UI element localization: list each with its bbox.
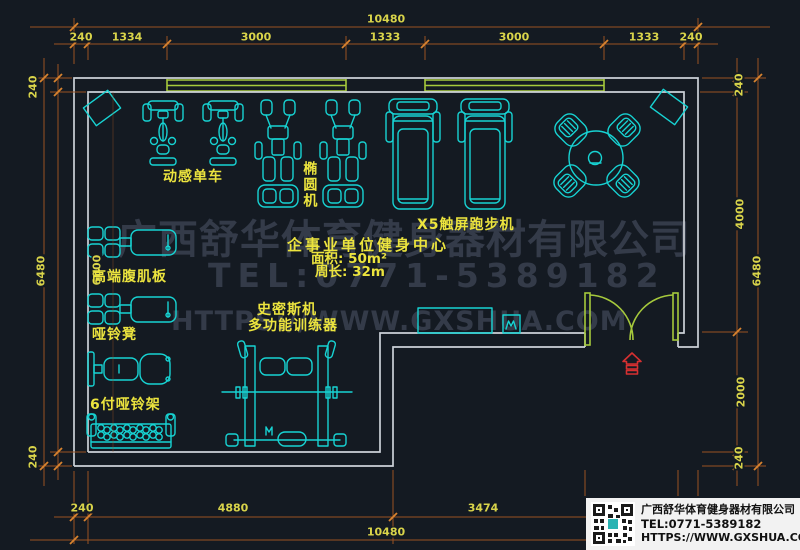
label-ab-board: 高端腹肌板 bbox=[92, 270, 167, 285]
dim-left-seg: 240 bbox=[28, 445, 39, 470]
label-elliptical: 椭圆机 bbox=[301, 161, 316, 209]
dim-bottom-seg: 4880 bbox=[217, 503, 250, 514]
dim-top-seg: 240 bbox=[69, 32, 94, 43]
smith-machine-icon bbox=[222, 340, 352, 446]
room-perimeter: 周长: 32m bbox=[315, 265, 385, 280]
logo-tel: TEL:0771-5389182 bbox=[641, 517, 800, 531]
logo-url: HTTPS://WWW.GXSHUA.COM bbox=[641, 531, 800, 545]
window-band-right bbox=[425, 79, 604, 92]
entrance-marker bbox=[623, 353, 641, 374]
label-spin-bike: 动感单车 bbox=[163, 170, 223, 185]
cad-floor-plan: 广西舒华体育健身器材有限公司 TEL:0771-5389182 HTTPS://… bbox=[0, 0, 800, 550]
qr-code-icon bbox=[591, 502, 635, 546]
dim-top-seg: 1334 bbox=[111, 32, 144, 43]
treadmill-icon bbox=[386, 99, 440, 209]
label-dumbbell-bench: 哑铃凳 bbox=[92, 328, 137, 343]
elliptical-icon bbox=[320, 100, 366, 207]
label-multi-trainer: 多功能训练器 bbox=[248, 319, 338, 334]
spin-bike-icon bbox=[203, 101, 243, 165]
dim-right-seg: 240 bbox=[734, 446, 745, 471]
dim-right-overall: 6480 bbox=[752, 255, 763, 288]
double-door bbox=[585, 293, 678, 345]
dim-bottom-overall: 10480 bbox=[366, 527, 406, 538]
dumbbell-rack-icon bbox=[87, 414, 175, 448]
dim-top-seg: 1333 bbox=[369, 32, 402, 43]
dim-right-seg: 2000 bbox=[736, 376, 747, 409]
dumbbell-bench-icon bbox=[88, 352, 170, 386]
dim-top-seg: 3000 bbox=[498, 32, 531, 43]
dim-right-seg: 240 bbox=[734, 73, 745, 98]
dim-top-seg: 1333 bbox=[628, 32, 661, 43]
dim-top-seg: 240 bbox=[679, 32, 704, 43]
treadmill-icon bbox=[458, 99, 512, 209]
dim-top-overall: 10480 bbox=[366, 14, 406, 25]
elliptical-icon bbox=[255, 100, 301, 207]
tv-cabinet bbox=[418, 308, 492, 333]
company-logo-box: 广西舒华体育健身器材有限公司 TEL:0771-5389182 HTTPS://… bbox=[586, 498, 800, 550]
dim-top-seg: 3000 bbox=[240, 32, 273, 43]
dim-bottom-seg: 3474 bbox=[467, 503, 500, 514]
ab-board-icon bbox=[88, 227, 176, 257]
round-table-with-chairs bbox=[550, 110, 644, 201]
wall-control-box bbox=[503, 315, 520, 333]
dim-left-overall: 6480 bbox=[36, 255, 47, 288]
label-dumbbell-rack: 6付哑铃架 bbox=[90, 398, 161, 413]
corner-speaker-icon bbox=[83, 90, 120, 125]
dim-bottom-seg: 240 bbox=[70, 503, 95, 514]
dim-right-seg: 4000 bbox=[735, 198, 746, 231]
label-treadmill: X5触屏跑步机 bbox=[417, 218, 515, 233]
label-smith-machine: 史密斯机 bbox=[257, 303, 317, 318]
corner-speaker-icon bbox=[650, 89, 687, 124]
spin-bike-icon bbox=[143, 101, 183, 165]
ab-board-icon bbox=[88, 294, 176, 324]
logo-company-name: 广西舒华体育健身器材有限公司 bbox=[641, 503, 800, 517]
window-band-left bbox=[167, 79, 346, 92]
dim-left-seg: 240 bbox=[28, 75, 39, 100]
